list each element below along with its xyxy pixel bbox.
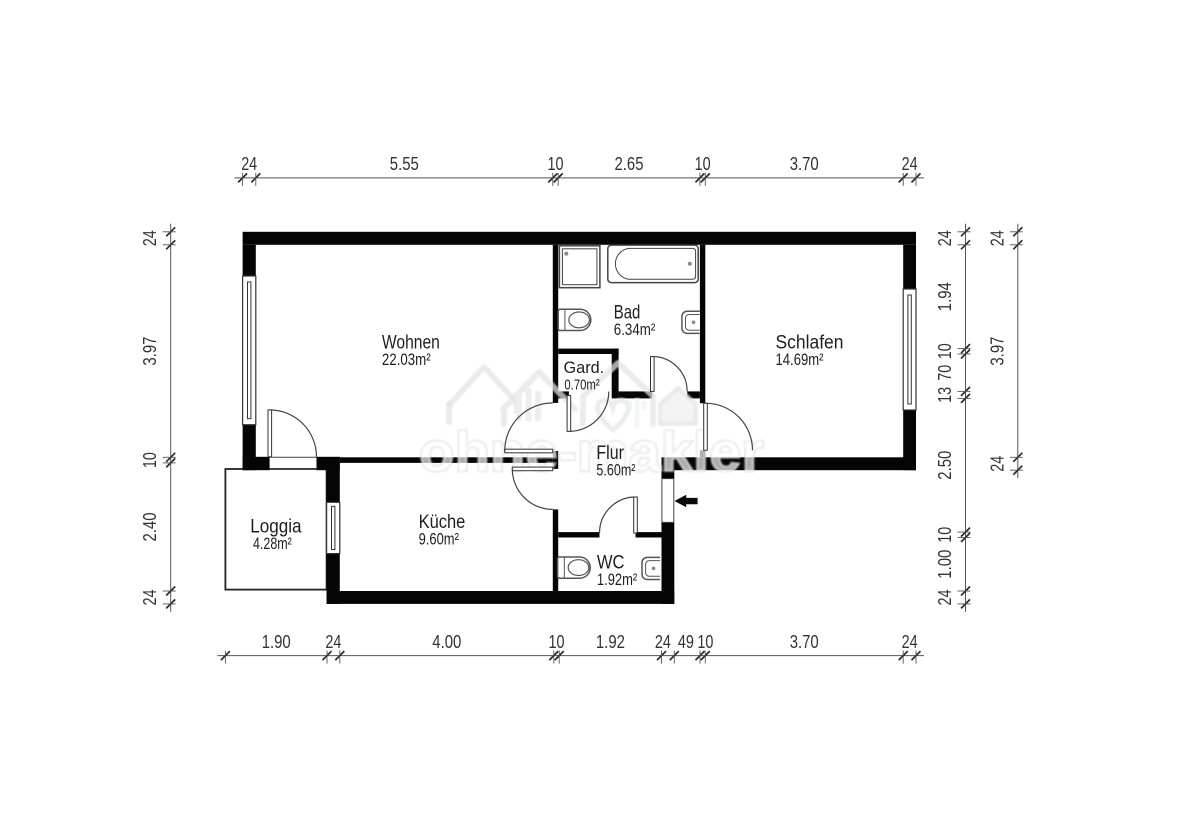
svg-text:10: 10	[548, 154, 564, 174]
svg-text:10: 10	[935, 343, 955, 359]
svg-text:24: 24	[325, 632, 341, 652]
svg-text:10: 10	[697, 632, 713, 652]
svg-text:4.00: 4.00	[432, 632, 461, 652]
svg-text:24: 24	[935, 590, 955, 606]
svg-text:10: 10	[140, 452, 160, 468]
svg-text:Gard.: Gard.	[564, 358, 605, 377]
svg-text:4.28m²: 4.28m²	[253, 535, 292, 553]
svg-text:24: 24	[902, 632, 918, 652]
svg-text:3.70: 3.70	[790, 632, 819, 652]
svg-text:3.97: 3.97	[140, 337, 160, 366]
svg-text:5.55: 5.55	[390, 154, 419, 174]
svg-text:1.94: 1.94	[935, 282, 955, 311]
svg-text:13: 13	[935, 387, 955, 403]
svg-text:2.50: 2.50	[935, 451, 955, 480]
svg-text:0.70m²: 0.70m²	[564, 377, 599, 394]
svg-text:10: 10	[695, 154, 711, 174]
svg-text:2.65: 2.65	[615, 154, 644, 174]
svg-text:24: 24	[655, 632, 671, 652]
svg-text:2.40: 2.40	[140, 513, 160, 542]
svg-text:10: 10	[935, 527, 955, 543]
svg-text:3.97: 3.97	[988, 337, 1008, 366]
svg-text:1.92: 1.92	[596, 632, 625, 652]
svg-text:24: 24	[935, 230, 955, 246]
svg-text:70: 70	[935, 365, 955, 381]
svg-text:24: 24	[988, 456, 1008, 472]
svg-text:ohne-makler: ohne-makler	[419, 420, 764, 483]
svg-text:6.34m²: 6.34m²	[614, 321, 656, 339]
svg-text:24: 24	[140, 590, 160, 606]
svg-text:14.69m²: 14.69m²	[776, 351, 824, 369]
svg-text:24: 24	[241, 154, 257, 174]
svg-text:1.92m²: 1.92m²	[597, 571, 638, 589]
svg-text:1.00: 1.00	[935, 550, 955, 579]
svg-text:1.90: 1.90	[262, 632, 291, 652]
svg-text:24: 24	[988, 230, 1008, 246]
svg-text:24: 24	[140, 230, 160, 246]
svg-text:24: 24	[902, 154, 918, 174]
svg-text:22.03m²: 22.03m²	[382, 351, 431, 369]
svg-text:5.60m²: 5.60m²	[596, 462, 635, 480]
svg-text:3.70: 3.70	[790, 154, 819, 174]
svg-text:49: 49	[678, 632, 694, 652]
svg-text:9.60m²: 9.60m²	[419, 531, 460, 549]
svg-text:10: 10	[549, 632, 565, 652]
